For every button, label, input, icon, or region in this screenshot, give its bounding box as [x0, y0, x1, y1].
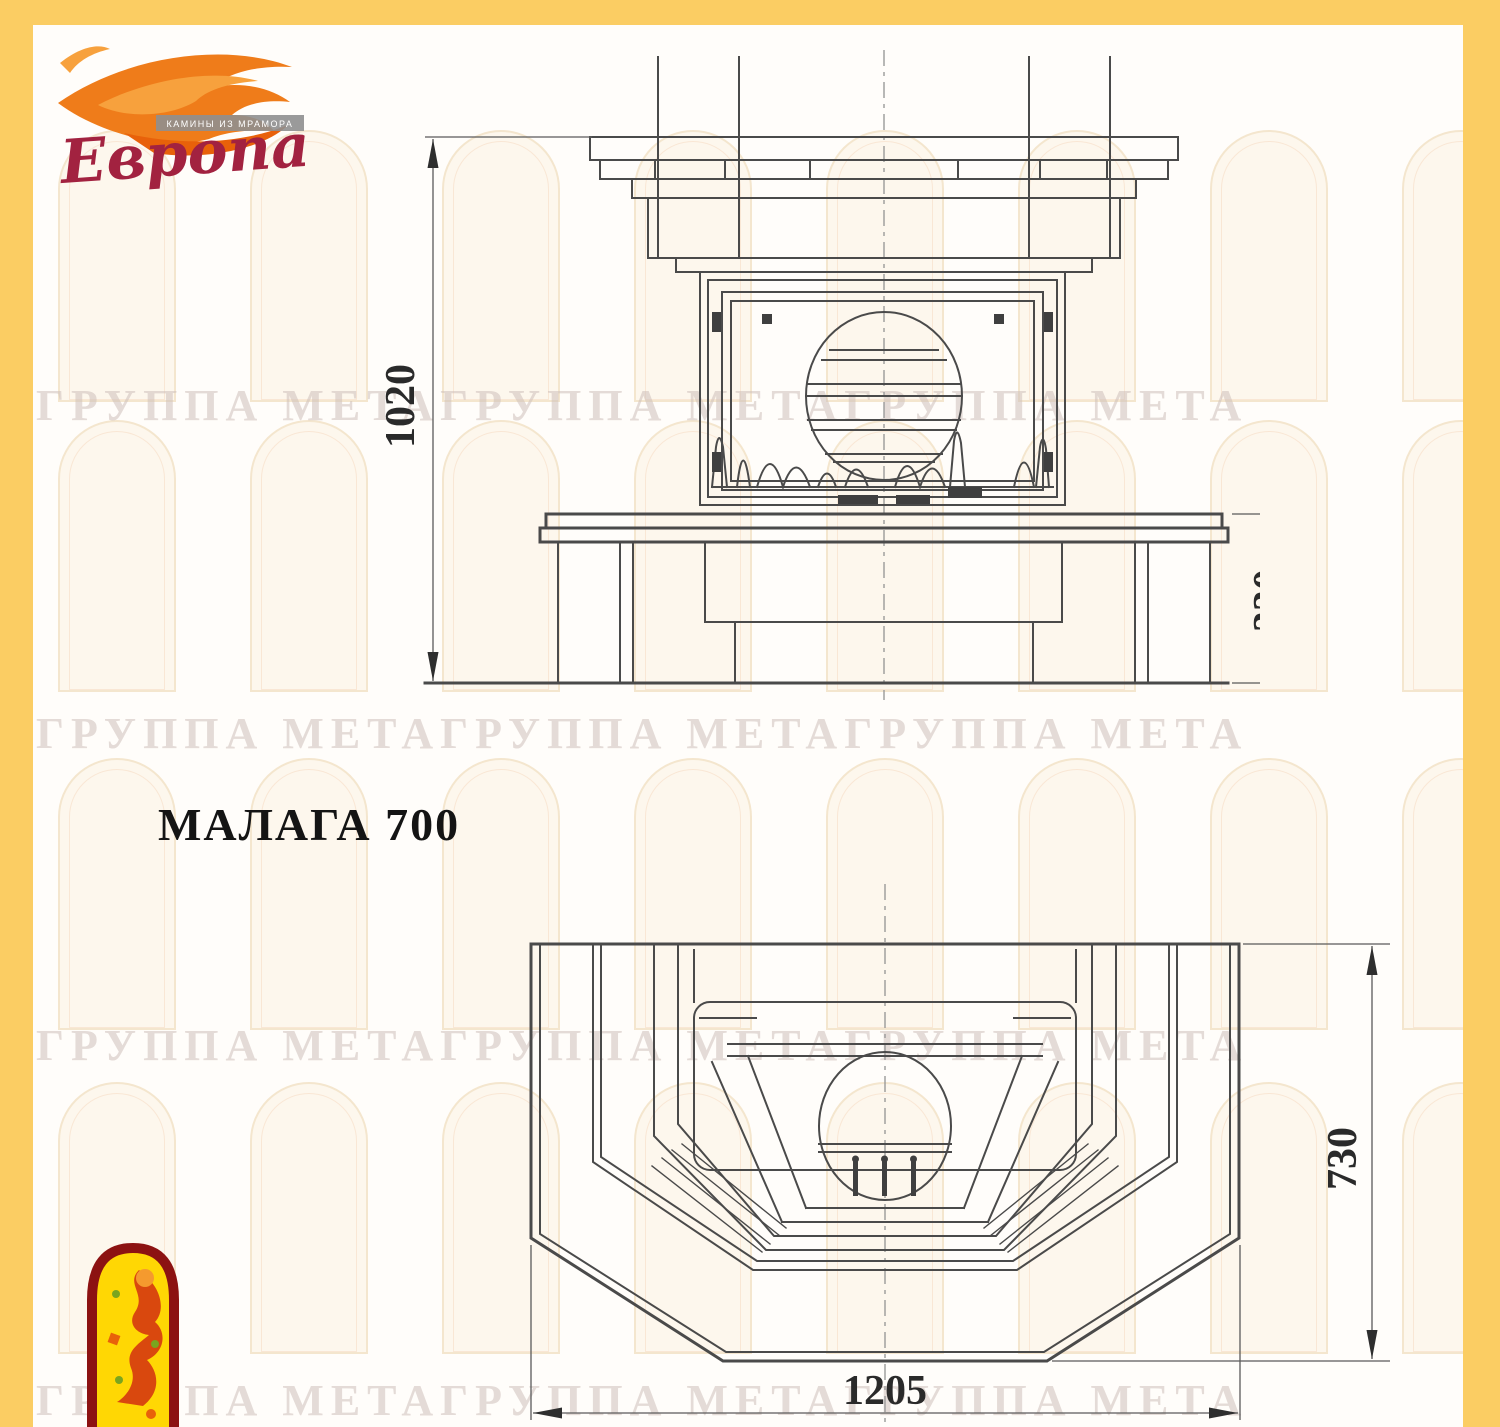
plan-view-drawing: 730 1205	[500, 880, 1400, 1427]
dim-base-330: 330	[1246, 569, 1260, 632]
plan-grate-bars	[852, 1156, 917, 1197]
watermark-arch	[58, 420, 176, 692]
hearth-shelf	[425, 514, 1228, 683]
plan-dimension-lines	[531, 944, 1390, 1420]
watermark-arch	[250, 420, 368, 692]
page: ГРУППА МЕТАГРУППА МЕТАГРУППА МЕТАГРУППА …	[0, 0, 1500, 1427]
model-title: МАЛАГА 700	[158, 798, 460, 851]
door-handle	[948, 487, 982, 498]
dim-width-1205: 1205	[843, 1368, 927, 1414]
yellow-border-left	[0, 0, 33, 1427]
brand-logo: КАМИНЫ ИЗ МРАМОРА Европа	[40, 25, 305, 205]
front-view-drawing: 1020 330	[380, 40, 1260, 700]
watermark-arch	[250, 1082, 368, 1354]
plan-dimension-arrows	[533, 946, 1378, 1419]
firebird-emblem-icon	[85, 1238, 181, 1427]
yellow-border-right	[1463, 0, 1500, 1427]
dim-height-1020: 1020	[380, 364, 424, 448]
dim-depth-730: 730	[1320, 1127, 1366, 1190]
brand-name: Европа	[56, 111, 305, 198]
flame-lines	[712, 432, 1049, 487]
firebox-hardware	[712, 312, 1053, 504]
watermark-text: ГРУППА МЕТАГРУППА МЕТАГРУППА МЕТА	[36, 708, 1248, 759]
yellow-border-top	[0, 0, 1500, 25]
